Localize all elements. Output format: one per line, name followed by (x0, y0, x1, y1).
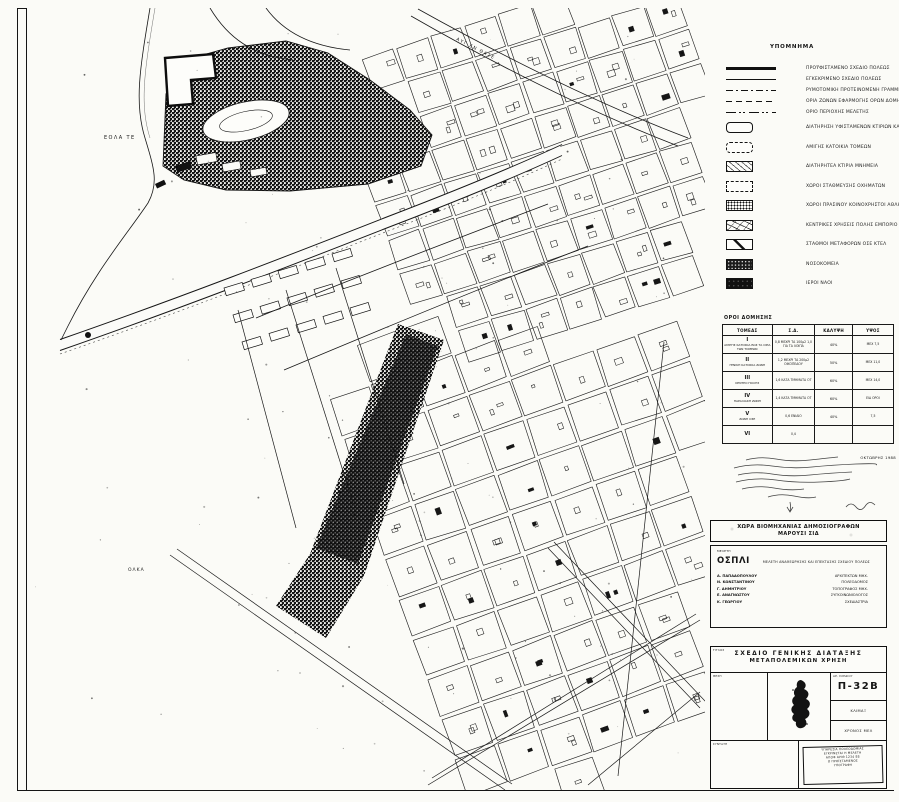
terms-sd-cell: 0,8 ΜΕΧΡΙ ΤΑ 100μ2 1,0 ΓΙΑ ΤΑ ΛΟΙΠΑ (772, 336, 815, 354)
sector-numeral: VΙ (724, 431, 771, 437)
page-border-left-outer (17, 8, 18, 791)
legend-item: ΚΕΝΤΡΙΚΕΣ ΧΡΗΣΕΙΣ ΠΟΛΗΣ ΕΜΠΟΡΙΟ ΓΡΑΦΕΙΑ (712, 216, 898, 236)
personnel-role: ΤΟΠΟΓΡΑΦΟΣ ΜΗΧ. (832, 587, 868, 591)
terms-sector-cell: ΙΙ ΓΕΝΙΚΗ ΚΑΤΟΙΚΙΑ ΖΩΝΗ (723, 354, 773, 372)
terms-column-header: ΚΑΛΥΨΗ (815, 325, 853, 336)
terms-sector-cell: Ι ΑΜΙΓΗΣ ΚΑΤΟΙΚΙΑ ΕΩΣ ΤΑ ΟΡΙΑ ΤΩΝ ΤΟΜΕΩΝ (723, 336, 773, 354)
prepared-corner-label: ΣΥΝΤΑΞΗ (713, 742, 727, 746)
personnel-row: Γ. ΔΗΜΗΤΡΙΟΥ ΤΟΠΟΓΡΑΦΟΣ ΜΗΧ. (717, 587, 880, 591)
terms-column-header: ΤΟΜΕΑΣ (723, 325, 773, 336)
terms-sd-cell: 1,6 ΚΑΤΑ ΤΜΗΜΑΤΑ ΟΤ (772, 372, 815, 390)
approval-stamp: ΥΠΗΡΕΣΙΑ ΠΟΛΕΟΔΟΜΙΑΣΕΓΚΡΙΝΕΤΑΙ Η ΜΕΛΕΤΗΑ… (803, 745, 884, 785)
terms-sd-cell: 1,2 ΜΕΧΡΙ ΤΑ 200μ2 ΟΙΚΟΠΕΔΟΥ (772, 354, 815, 372)
legend-symbol-swatch (726, 90, 776, 91)
legend-item-label: ΟΡΙΟ ΠΕΡΙΟΧΗΣ ΜΕΛΕΤΗΣ (806, 110, 869, 115)
agency-subtitle: ΜΕΛΕΤΗ ΑΝΑΘΕΩΡΗΣΗΣ ΚΑΙ ΕΠΕΚΤΑΣΗΣ ΣΧΕΔΙΟΥ… (763, 560, 870, 564)
terms-coverage-cell: 60% (815, 372, 853, 390)
legend-symbol (726, 239, 782, 250)
legend-title: ΥΠΟΜΝΗΜΑ (770, 44, 898, 50)
personnel-name: Ν. ΚΩΝΣΤΑΝΤΙΝΟΥ (717, 580, 755, 584)
prepared-cell: ΣΥΝΤΑΞΗ (711, 741, 799, 788)
legend-item-label: ΚΕΝΤΡΙΚΕΣ ΧΡΗΣΕΙΣ ΠΟΛΗΣ ΕΜΠΟΡΙΟ ΓΡΑΦΕΙΑ (806, 223, 899, 228)
terms-height-cell: ΜΕΧ 14,0 (852, 372, 893, 390)
legend-item: ΔΙΑΤΗΡΗΤΕΑ ΚΤΙΡΙΑ ΜΝΗΜΕΙΑ (712, 157, 898, 177)
legend-symbol-swatch (726, 79, 776, 80)
location-cell: ΘΕΣΗ (711, 673, 768, 740)
page-border-bottom (17, 790, 894, 791)
legend-item: ΑΜΙΓΗΣ ΚΑΤΟΙΚΙΑ ΤΟΜΕΩΝ (712, 138, 898, 158)
legend-symbol (726, 112, 782, 113)
personnel-list: Α. ΠΑΠΑΔΟΠΟΥΛΟΥ ΑΡΧΙΤΕΚΤΩΝ ΜΗΧ. Ν. ΚΩΝΣΤ… (717, 574, 880, 604)
legend-item-label: ΝΟΣΟΚΟΜΕΙΑ (806, 262, 839, 267)
building-terms: ΟΡΟΙ ΔΟΜΗΣΗΣ ΤΟΜΕΑΣΣ.Δ.ΚΑΛΥΨΗΥΨΟΣ Ι ΑΜΙΓ… (722, 316, 894, 444)
terms-header-row: ΤΟΜΕΑΣΣ.Δ.ΚΑΛΥΨΗΥΨΟΣ (723, 325, 894, 336)
legend-symbol (726, 79, 782, 80)
drawing-title-cell: ΤΙΤΛΟΣ ΣΧΕΔΙΟ ΓΕΝΙΚΗΣ ΔΙΑΤΑΞΗΣ ΜΕΤΑΠΟΛΕΜ… (711, 647, 886, 673)
terms-sd-cell: 1,4 ΚΑΤΑ ΤΜΗΜΑΤΑ ΟΤ (772, 390, 815, 408)
handwritten-notes (728, 452, 890, 516)
legend-item: ΣΤΑΘΜΟΙ ΜΕΤΑΦΟΡΩΝ ΟΣΕ ΚΤΕΛ (712, 235, 898, 255)
legend-item-label: ΟΡΙΑ ΖΩΝΩΝ ΕΦΑΡΜΟΓΗΣ ΟΡΩΝ ΔΟΜΗΣΗΣ (806, 99, 899, 104)
legend-symbol (726, 200, 782, 211)
drawing-title-line1: ΣΧΕΔΙΟ ΓΕΝΙΚΗΣ ΔΙΑΤΑΞΗΣ (711, 650, 886, 657)
legend-item-label: ΠΡΟΫΦΙΣΤΑΜΕΝΟ ΣΧΕΔΙΟ ΠΟΛΕΩΣ (806, 66, 890, 71)
legend-symbol-swatch (726, 200, 753, 211)
drawing-title-line2: ΜΕΤΑΠΟΛΕΜΙΚΩΝ ΧΡΗΣΗ (711, 658, 886, 664)
terms-row: ΙV ΠΑΡΑΛΙΑΚΗ ΖΩΝΗ 1,4 ΚΑΤΑ ΤΜΗΜΑΤΑ ΟΤ 60… (723, 390, 894, 408)
legend-symbol (726, 161, 782, 172)
sector-note: ΑΜΙΓΗΣ ΚΑΤΟΙΚΙΑ ΕΩΣ ΤΑ ΟΡΙΑ ΤΩΝ ΤΟΜΕΩΝ (724, 344, 771, 352)
terms-row: Ι ΑΜΙΓΗΣ ΚΑΤΟΙΚΙΑ ΕΩΣ ΤΑ ΟΡΙΑ ΤΩΝ ΤΟΜΕΩΝ… (723, 336, 894, 354)
sea-label-top: ΕΟΛΑ ΤΕ (104, 135, 136, 141)
legend-item: ΟΡΙΑ ΖΩΝΩΝ ΕΦΑΡΜΟΓΗΣ ΟΡΩΝ ΔΟΜΗΣΗΣ (712, 96, 898, 107)
terms-sd-cell: 0,4 (772, 426, 815, 444)
legend-item: ΕΓΚΕΚΡΙΜΕΝΟ ΣΧΕΔΙΟ ΠΟΛΕΩΣ (712, 74, 898, 85)
terms-sector-cell: ΙV ΠΑΡΑΛΙΑΚΗ ΖΩΝΗ (723, 390, 773, 408)
terms-sd-cell: 0,6 ΕΝΙΑΙΟ (772, 408, 815, 426)
legend-symbol (726, 90, 782, 91)
terms-height-cell: ΕΙΔ ΟΡΟΙ (852, 390, 893, 408)
city-plan-map: ΕΟΛΑ ΤΕΟΛΚΑΑΥΓ ΕΝ ΘΑΣΕ (28, 8, 705, 790)
terms-column-header: ΥΨΟΣ (852, 325, 893, 336)
legend: ΥΠΟΜΝΗΜΑ ΠΡΟΫΦΙΣΤΑΜΕΝΟ ΣΧΕΔΙΟ ΠΟΛΕΩΣ ΕΓΚ… (712, 44, 898, 294)
sector-note: ΖΩΝΗ ΟΣΕ (724, 418, 771, 422)
personnel-name: Ε. ΑΝΑΓΝΩΣΤΟΥ (717, 593, 750, 597)
legend-item-label: ΔΙΑΤΗΡΗΣΗ ΥΦΙΣΤΑΜΕΝΩΝ ΚΤΙΡΙΩΝ ΚΑΙ ΧΡΗΣΕΩ… (806, 125, 899, 130)
personnel-row: Ε. ΑΝΑΓΝΩΣΤΟΥ ΣΥΓΚΟΙΝΩΝΙΟΛΟΓΟΣ (717, 593, 880, 597)
stamp-line: ΥΠΟΓΡΑΦΗ (804, 763, 882, 769)
terms-row: ΙΙ ΓΕΝΙΚΗ ΚΑΤΟΙΚΙΑ ΖΩΝΗ 1,2 ΜΕΧΡΙ ΤΑ 200… (723, 354, 894, 372)
legend-symbol-swatch (726, 239, 753, 250)
sector-note: ΚΕΝΤΡΟ ΠΟΛΗΣ (724, 382, 771, 386)
agency-block: ΧΩΡΑ ΒΙΟΜΗΧΑΝΙΑΣ ΔΗΜΟΣΙΟΓΡΑΦΩΝ ΜΑΡΟΥΣΙ Σ… (710, 520, 887, 628)
legend-items: ΠΡΟΫΦΙΣΤΑΜΕΝΟ ΣΧΕΔΙΟ ΠΟΛΕΩΣ ΕΓΚΕΚΡΙΜΕΝΟ … (712, 63, 898, 294)
sector-note: ΓΕΝΙΚΗ ΚΑΤΟΙΚΙΑ ΖΩΝΗ (724, 364, 771, 368)
personnel-row: Ν. ΚΩΝΣΤΑΝΤΙΝΟΥ ΠΟΛΕΟΔΟΜΟΣ (717, 580, 880, 584)
terms-coverage-cell (815, 426, 853, 444)
terms-body: Ι ΑΜΙΓΗΣ ΚΑΤΟΙΚΙΑ ΕΩΣ ΤΑ ΟΡΙΑ ΤΩΝ ΤΟΜΕΩΝ… (723, 336, 894, 444)
building-terms-table: ΤΟΜΕΑΣΣ.Δ.ΚΑΛΥΨΗΥΨΟΣ Ι ΑΜΙΓΗΣ ΚΑΤΟΙΚΙΑ Ε… (722, 324, 894, 444)
location-corner-label: ΘΕΣΗ (713, 674, 722, 678)
legend-symbol-swatch (726, 220, 753, 231)
legend-symbol-swatch (726, 142, 753, 153)
legend-item: ΔΙΑΤΗΡΗΣΗ ΥΦΙΣΤΑΜΕΝΩΝ ΚΤΙΡΙΩΝ ΚΑΙ ΧΡΗΣΕΩ… (712, 118, 898, 138)
agency-org-code: ΟΣΠΛΙ (717, 556, 750, 566)
terms-coverage-cell: 50% (815, 354, 853, 372)
legend-symbol-swatch (726, 278, 753, 289)
sheet-number: Π-32Β (831, 681, 886, 692)
legend-item-label: ΑΜΙΓΗΣ ΚΑΤΟΙΚΙΑ ΤΟΜΕΩΝ (806, 145, 871, 150)
personnel-name: Γ. ΔΗΜΗΤΡΙΟΥ (717, 587, 746, 591)
agency-header: ΧΩΡΑ ΒΙΟΜΗΧΑΝΙΑΣ ΔΗΜΟΣΙΟΓΡΑΦΩΝ ΜΑΡΟΥΣΙ Σ… (710, 520, 887, 542)
terms-row: ΙΙΙ ΚΕΝΤΡΟ ΠΟΛΗΣ 1,6 ΚΑΤΑ ΤΜΗΜΑΤΑ ΟΤ 60%… (723, 372, 894, 390)
personnel-name: Κ. ΓΕΩΡΓΙΟΥ (717, 600, 742, 604)
legend-symbol (726, 142, 782, 153)
personnel-role: ΣΥΓΚΟΙΝΩΝΙΟΛΟΓΟΣ (831, 593, 868, 597)
terms-coverage-cell: 40% (815, 408, 853, 426)
terms-row: VΙ 0,4 (723, 426, 894, 444)
legend-symbol (726, 101, 782, 102)
legend-symbol (726, 259, 782, 270)
legend-item: ΟΡΙΟ ΠΕΡΙΟΧΗΣ ΜΕΛΕΤΗΣ (712, 107, 898, 118)
terms-height-cell: ΜΕΧ 11,0 (852, 354, 893, 372)
key-map-blob (791, 680, 810, 728)
sea-label-bottom: ΟΛΚΑ (128, 567, 145, 573)
legend-item: ΠΡΟΫΦΙΣΤΑΜΕΝΟ ΣΧΕΔΙΟ ΠΟΛΕΩΣ (712, 63, 898, 74)
sheet-number-label: ΑΡ. ΣΧΕΔΙΟΥ (833, 674, 853, 678)
terms-sector-cell: VΙ (723, 426, 773, 444)
terms-row: V ΖΩΝΗ ΟΣΕ 0,6 ΕΝΙΑΙΟ 40% 7,5 (723, 408, 894, 426)
sheet-number-cell: ΑΡ. ΣΧΕΔΙΟΥ Π-32Β (831, 673, 886, 701)
title-corner-label: ΤΙΤΛΟΣ (713, 648, 724, 652)
legend-symbol-swatch (726, 161, 753, 172)
terms-column-header: Σ.Δ. (772, 325, 815, 336)
drawing-title-block: ΤΙΤΛΟΣ ΣΧΕΔΙΟ ΓΕΝΙΚΗΣ ΔΙΑΤΑΞΗΣ ΜΕΤΑΠΟΛΕΜ… (710, 646, 887, 789)
page-border-top-cap (17, 8, 27, 9)
agency-org-row: ΟΣΠΛΙ ΜΕΛΕΤΗ ΑΝΑΘΕΩΡΗΣΗΣ ΚΑΙ ΕΠΕΚΤΑΣΗΣ Σ… (717, 556, 880, 566)
personnel-role: ΑΡΧΙΤΕΚΤΩΝ ΜΗΧ. (835, 574, 868, 578)
agency-header-line1: ΧΩΡΑ ΒΙΟΜΗΧΑΝΙΑΣ ΔΗΜΟΣΙΟΓΡΑΦΩΝ (713, 524, 884, 530)
legend-item-label: ΕΓΚΕΚΡΙΜΕΝΟ ΣΧΕΔΙΟ ΠΟΛΕΩΣ (806, 77, 881, 82)
terms-sector-cell: V ΖΩΝΗ ΟΣΕ (723, 408, 773, 426)
personnel-row: Κ. ΓΕΩΡΓΙΟΥ ΣΧΕΔΙΑΣΤΡΙΑ (717, 600, 880, 604)
legend-item-label: ΧΩΡΟΙ ΠΡΑΣΙΝΟΥ ΚΟΙΝΟΧΡΗΣΤΟΙ ΑΘΛΗΤΙΚΟΙ (806, 203, 899, 208)
legend-item-label: ΔΙΑΤΗΡΗΤΕΑ ΚΤΙΡΙΑ ΜΝΗΜΕΙΑ (806, 164, 878, 169)
legend-item: ΝΟΣΟΚΟΜΕΙΑ (712, 255, 898, 275)
legend-item-label: ΧΩΡΟΙ ΣΤΑΘΜΕΥΣΗΣ ΟΧΗΜΑΤΩΝ (806, 184, 885, 189)
agency-corner-note: ΜΕΛΕΤΗ (717, 549, 880, 553)
terms-height-cell: ΜΕΧ 7,5 (852, 336, 893, 354)
scanned-urban-plan-sheet: { "map": { "sea_label_top": "ΕΟΛΑ ΤΕ", "… (0, 0, 899, 802)
note-squiggles (734, 457, 877, 512)
terms-height-cell: 7,5 (852, 408, 893, 426)
terms-sector-cell: ΙΙΙ ΚΕΝΤΡΟ ΠΟΛΗΣ (723, 372, 773, 390)
legend-symbol-swatch (726, 122, 753, 133)
drawing-bottom-row: ΣΥΝΤΑΞΗ ΥΠΗΡΕΣΙΑ ΠΟΛΕΟΔΟΜΙΑΣΕΓΚΡΙΝΕΤΑΙ Η… (711, 741, 886, 788)
drawing-mid-row: ΘΕΣΗ ΑΡ. ΣΧΕΔΙΟΥ Π-32Β ΚΛΙΜΑΞ ΧΡΟΝΟΣ ΜΕΛ (711, 673, 886, 741)
legend-symbol-swatch (726, 181, 753, 192)
personnel-role: ΠΟΛΕΟΔΟΜΟΣ (841, 580, 868, 584)
agency-main: ΜΕΛΕΤΗ ΟΣΠΛΙ ΜΕΛΕΤΗ ΑΝΑΘΕΩΡΗΣΗΣ ΚΑΙ ΕΠΕΚ… (710, 545, 887, 628)
key-map-cell (768, 673, 831, 740)
legend-symbol-swatch (726, 101, 776, 102)
legend-symbol-swatch (726, 112, 776, 113)
terms-coverage-cell: 40% (815, 336, 853, 354)
date-cell: ΧΡΟΝΟΣ ΜΕΛ (831, 721, 886, 740)
personnel-role: ΣΧΕΔΙΑΣΤΡΙΑ (845, 600, 868, 604)
legend-symbol (726, 67, 782, 69)
agency-header-line2: ΜΑΡΟΥΣΙ ΣΙΔ (713, 531, 884, 537)
personnel-name: Α. ΠΑΠΑΔΟΠΟΥΛΟΥ (717, 574, 757, 578)
legend-symbol (726, 122, 782, 133)
sector-note: ΠΑΡΑΛΙΑΚΗ ΖΩΝΗ (724, 400, 771, 404)
page-border-left-inner (26, 8, 27, 791)
legend-item: ΧΩΡΟΙ ΠΡΑΣΙΝΟΥ ΚΟΙΝΟΧΡΗΣΤΟΙ ΑΘΛΗΤΙΚΟΙ (712, 196, 898, 216)
terms-coverage-cell: 60% (815, 390, 853, 408)
legend-symbol (726, 220, 782, 231)
legend-symbol (726, 181, 782, 192)
legend-item-label: ΙΕΡΟΙ ΝΑΟΙ (806, 281, 833, 286)
drawing-right-column: ΑΡ. ΣΧΕΔΙΟΥ Π-32Β ΚΛΙΜΑΞ ΧΡΟΝΟΣ ΜΕΛ (831, 673, 886, 740)
legend-item-label: ΡΥΜΟΤΟΜΙΚΗ ΠΡΟΤΕΙΝΟΜΕΝΗ ΓΡΑΜΜΗ (806, 88, 899, 93)
approval-stamp-cell: ΥΠΗΡΕΣΙΑ ΠΟΛΕΟΔΟΜΙΑΣΕΓΚΡΙΝΕΤΑΙ Η ΜΕΛΕΤΗΑ… (799, 741, 886, 788)
legend-symbol-swatch (726, 259, 753, 270)
legend-symbol (726, 278, 782, 289)
scale-cell: ΚΛΙΜΑΞ (831, 701, 886, 721)
legend-item: ΙΕΡΟΙ ΝΑΟΙ (712, 274, 898, 294)
building-terms-title: ΟΡΟΙ ΔΟΜΗΣΗΣ (724, 316, 894, 321)
personnel-row: Α. ΠΑΠΑΔΟΠΟΥΛΟΥ ΑΡΧΙΤΕΚΤΩΝ ΜΗΧ. (717, 574, 880, 578)
legend-symbol-swatch (726, 67, 776, 69)
legend-item-label: ΣΤΑΘΜΟΙ ΜΕΤΑΦΟΡΩΝ ΟΣΕ ΚΤΕΛ (806, 242, 886, 247)
legend-item: ΧΩΡΟΙ ΣΤΑΘΜΕΥΣΗΣ ΟΧΗΜΑΤΩΝ (712, 177, 898, 197)
key-map (771, 676, 827, 738)
terms-height-cell (852, 426, 893, 444)
legend-item: ΡΥΜΟΤΟΜΙΚΗ ΠΡΟΤΕΙΝΟΜΕΝΗ ΓΡΑΜΜΗ (712, 85, 898, 96)
